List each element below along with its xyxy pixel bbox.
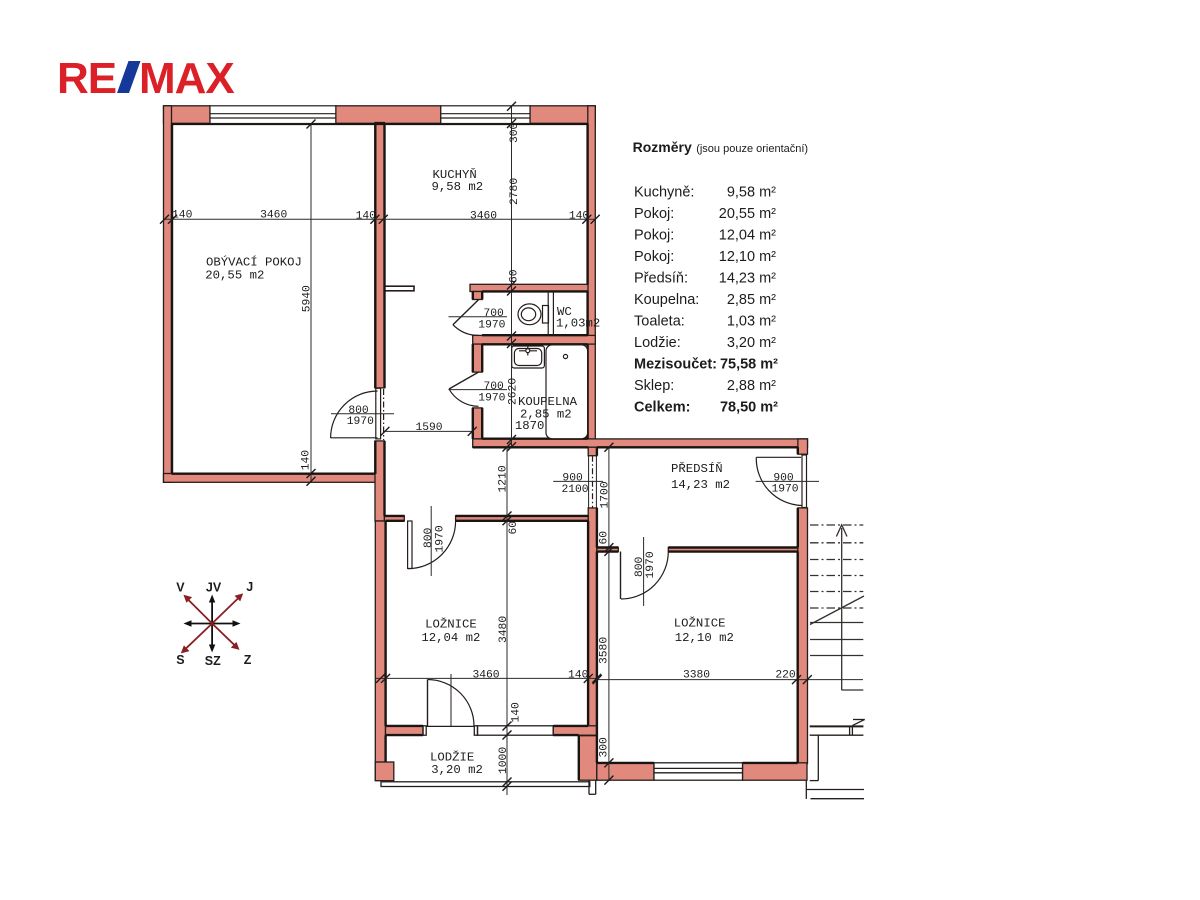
svg-text:5940: 5940: [301, 285, 313, 312]
svg-text:Celkem:: Celkem:: [634, 399, 690, 415]
svg-text:3460: 3460: [472, 669, 499, 681]
svg-text:(jsou pouze orientační): (jsou pouze orientační): [696, 143, 808, 155]
svg-text:3480: 3480: [498, 616, 510, 643]
svg-text:Koupelna:: Koupelna:: [634, 292, 699, 308]
svg-text:60: 60: [508, 521, 520, 535]
svg-text:140: 140: [300, 450, 312, 471]
svg-text:140: 140: [356, 210, 377, 222]
svg-text:2,88 m²: 2,88 m²: [727, 378, 776, 394]
svg-text:J: J: [246, 580, 253, 594]
svg-text:1970: 1970: [645, 551, 657, 578]
svg-text:RE: RE: [57, 54, 116, 103]
svg-text:Pokoj:: Pokoj:: [634, 206, 674, 222]
svg-text:Toaleta:: Toaleta:: [634, 313, 685, 329]
svg-text:1970: 1970: [435, 525, 447, 552]
svg-text:LOŽNICE: LOŽNICE: [674, 616, 726, 631]
svg-text:1590: 1590: [415, 422, 442, 434]
svg-text:2780: 2780: [509, 178, 521, 205]
svg-text:1,03m2: 1,03m2: [556, 317, 600, 331]
svg-text:140: 140: [510, 702, 522, 723]
svg-text:9,58 m²: 9,58 m²: [727, 184, 776, 200]
svg-text:800: 800: [423, 527, 435, 548]
svg-text:220: 220: [775, 670, 796, 682]
svg-text:3460: 3460: [260, 210, 287, 222]
svg-text:2100: 2100: [561, 484, 588, 496]
svg-text:SZ: SZ: [205, 654, 221, 668]
svg-text:Pokoj:: Pokoj:: [634, 227, 674, 243]
svg-text:3,20 m²: 3,20 m²: [727, 335, 776, 351]
svg-text:12,04 m2: 12,04 m2: [421, 631, 480, 645]
svg-text:2,85 m²: 2,85 m²: [727, 292, 776, 308]
svg-text:3,20 m2: 3,20 m2: [431, 763, 483, 777]
svg-text:Z: Z: [244, 653, 252, 667]
svg-text:1700: 1700: [599, 481, 611, 508]
svg-text:1210: 1210: [497, 465, 509, 492]
svg-text:Kuchyně:: Kuchyně:: [634, 184, 694, 200]
svg-text:S: S: [176, 653, 184, 667]
svg-text:1970: 1970: [478, 320, 505, 332]
svg-text:MAX: MAX: [139, 54, 234, 103]
svg-text:300: 300: [509, 122, 521, 143]
svg-text:800: 800: [348, 405, 369, 417]
svg-text:60: 60: [599, 531, 611, 545]
svg-text:V: V: [176, 580, 185, 594]
svg-text:75,58 m²: 75,58 m²: [720, 356, 778, 372]
svg-text:Mezisoučet:: Mezisoučet:: [634, 356, 717, 372]
svg-text:12,04 m²: 12,04 m²: [719, 227, 776, 243]
svg-text:12,10 m2: 12,10 m2: [675, 631, 734, 645]
svg-text:700: 700: [484, 308, 505, 320]
svg-text:78,50 m²: 78,50 m²: [720, 399, 778, 415]
svg-text:Předsíň:: Předsíň:: [634, 270, 688, 286]
svg-text:1970: 1970: [478, 392, 505, 404]
svg-text:14,23 m²: 14,23 m²: [719, 270, 776, 286]
svg-text:20,55 m2: 20,55 m2: [205, 269, 264, 283]
svg-text:Pokoj:: Pokoj:: [634, 249, 674, 265]
svg-text:20,55 m²: 20,55 m²: [719, 206, 776, 222]
svg-text:3460: 3460: [470, 210, 497, 222]
svg-text:900: 900: [562, 473, 583, 485]
svg-text:1970: 1970: [771, 484, 798, 496]
svg-text:1,03 m²: 1,03 m²: [727, 313, 776, 329]
svg-text:1000: 1000: [498, 747, 510, 774]
svg-text:Rozměry: Rozměry: [633, 139, 692, 155]
svg-text:3580: 3580: [599, 637, 611, 664]
svg-text:14,23 m2: 14,23 m2: [671, 478, 730, 492]
svg-text:1970: 1970: [347, 416, 374, 428]
svg-text:300: 300: [599, 737, 611, 758]
svg-text:140: 140: [568, 670, 589, 682]
svg-text:700: 700: [484, 381, 505, 393]
svg-text:9,58 m2: 9,58 m2: [432, 180, 484, 194]
svg-text:LOŽNICE: LOŽNICE: [425, 616, 477, 631]
svg-text:OBÝVACÍ POKOJ: OBÝVACÍ POKOJ: [206, 255, 302, 270]
svg-text:140: 140: [172, 210, 193, 222]
svg-text:LODŽIE: LODŽIE: [430, 749, 474, 764]
svg-text:Sklep:: Sklep:: [634, 378, 674, 394]
svg-text:12,10 m²: 12,10 m²: [719, 249, 776, 265]
svg-text:1870: 1870: [515, 419, 545, 433]
svg-text:PŘEDSÍŇ: PŘEDSÍŇ: [671, 461, 723, 476]
svg-text:JV: JV: [206, 580, 222, 594]
svg-text:3380: 3380: [683, 669, 710, 681]
svg-text:60: 60: [509, 269, 521, 283]
svg-text:Lodžie:: Lodžie:: [634, 335, 681, 351]
svg-text:140: 140: [569, 210, 590, 222]
